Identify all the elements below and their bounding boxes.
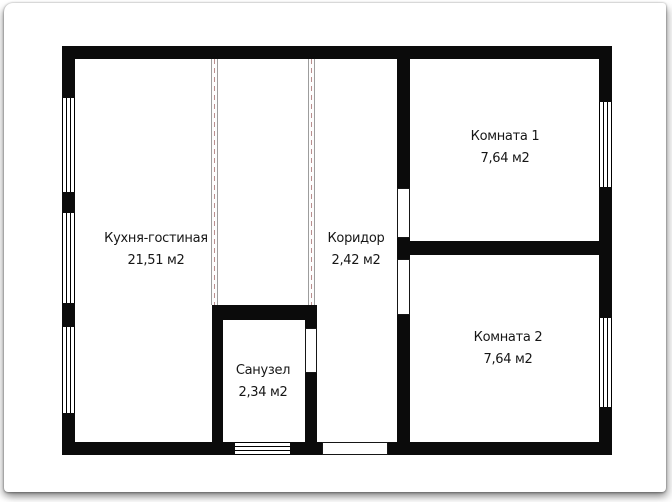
room-name: Санузел <box>178 360 348 382</box>
room-label-room1: Комната 1 7,64 м2 <box>420 126 590 170</box>
room-label-kitchen-living: Кухня-гостиная 21,51 м2 <box>71 228 241 272</box>
room-area: 7,64 м2 <box>420 148 590 170</box>
room-area: 21,51 м2 <box>71 250 241 272</box>
room-name: Коридор <box>271 228 441 250</box>
room-label-corridor: Коридор 2,42 м2 <box>271 228 441 272</box>
window-room1 <box>599 102 612 187</box>
room-label-room2: Комната 2 7,64 м2 <box>423 327 593 371</box>
room-area: 2,42 м2 <box>271 250 441 272</box>
room-area: 7,64 м2 <box>423 349 593 371</box>
window-bathroom <box>235 442 290 455</box>
window-kitchen-1 <box>62 98 75 192</box>
room-area: 2,34 м2 <box>178 382 348 404</box>
wall-outer-top <box>62 46 612 59</box>
room-name: Кухня-гостиная <box>71 228 241 250</box>
window-kitchen-3 <box>62 327 75 413</box>
window-room2 <box>599 318 612 407</box>
door-entrance <box>322 442 388 455</box>
room-name: Комната 2 <box>423 327 593 349</box>
floor-plan-canvas: Кухня-гостиная 21,51 м2 Коридор 2,42 м2 … <box>0 0 672 502</box>
room-name: Комната 1 <box>420 126 590 148</box>
wall-bathroom-top <box>212 305 317 320</box>
room-label-bathroom: Санузел 2,34 м2 <box>178 360 348 404</box>
